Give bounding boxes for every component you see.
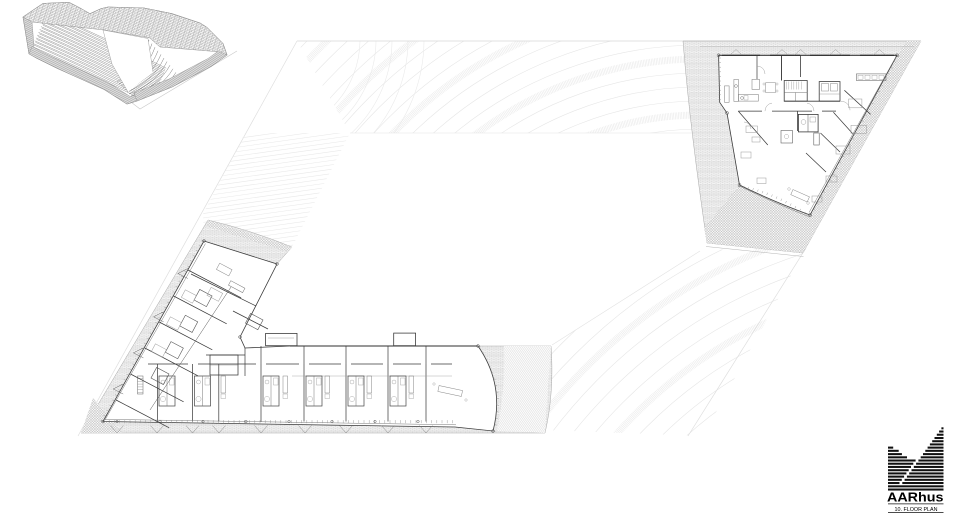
- svg-text:AARhus: AARhus: [887, 491, 944, 505]
